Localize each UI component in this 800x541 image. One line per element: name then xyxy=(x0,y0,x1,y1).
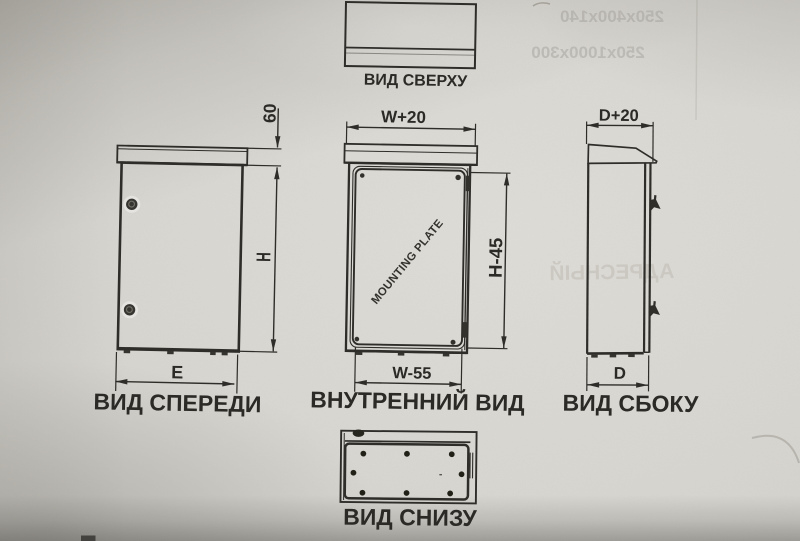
svg-text:E: E xyxy=(171,362,183,382)
svg-text:D+20: D+20 xyxy=(599,107,639,125)
svg-text:АДРЕСНЫЙ: АДРЕСНЫЙ xyxy=(549,259,674,285)
svg-text:250x1000x300: 250x1000x300 xyxy=(531,43,644,62)
svg-text:H: H xyxy=(253,252,276,262)
svg-text:W-55: W-55 xyxy=(392,364,431,383)
svg-text:ВИД СБОКУ: ВИД СБОКУ xyxy=(562,390,699,417)
svg-text:H-45: H-45 xyxy=(485,238,507,278)
svg-text:ВИД СПЕРЕДИ: ВИД СПЕРЕДИ xyxy=(93,388,261,417)
svg-text:W+20: W+20 xyxy=(381,107,426,127)
svg-text:60: 60 xyxy=(260,103,280,123)
svg-text:ВНУТРЕННИЙ ВИД: ВНУТРЕННИЙ ВИД xyxy=(310,385,525,416)
svg-text:ВИД СВЕРХУ: ВИД СВЕРХУ xyxy=(364,72,469,91)
svg-text:D: D xyxy=(614,364,626,383)
svg-text:ВИД СНИЗУ: ВИД СНИЗУ xyxy=(343,504,477,531)
svg-text:250x400x140: 250x400x140 xyxy=(560,7,664,26)
